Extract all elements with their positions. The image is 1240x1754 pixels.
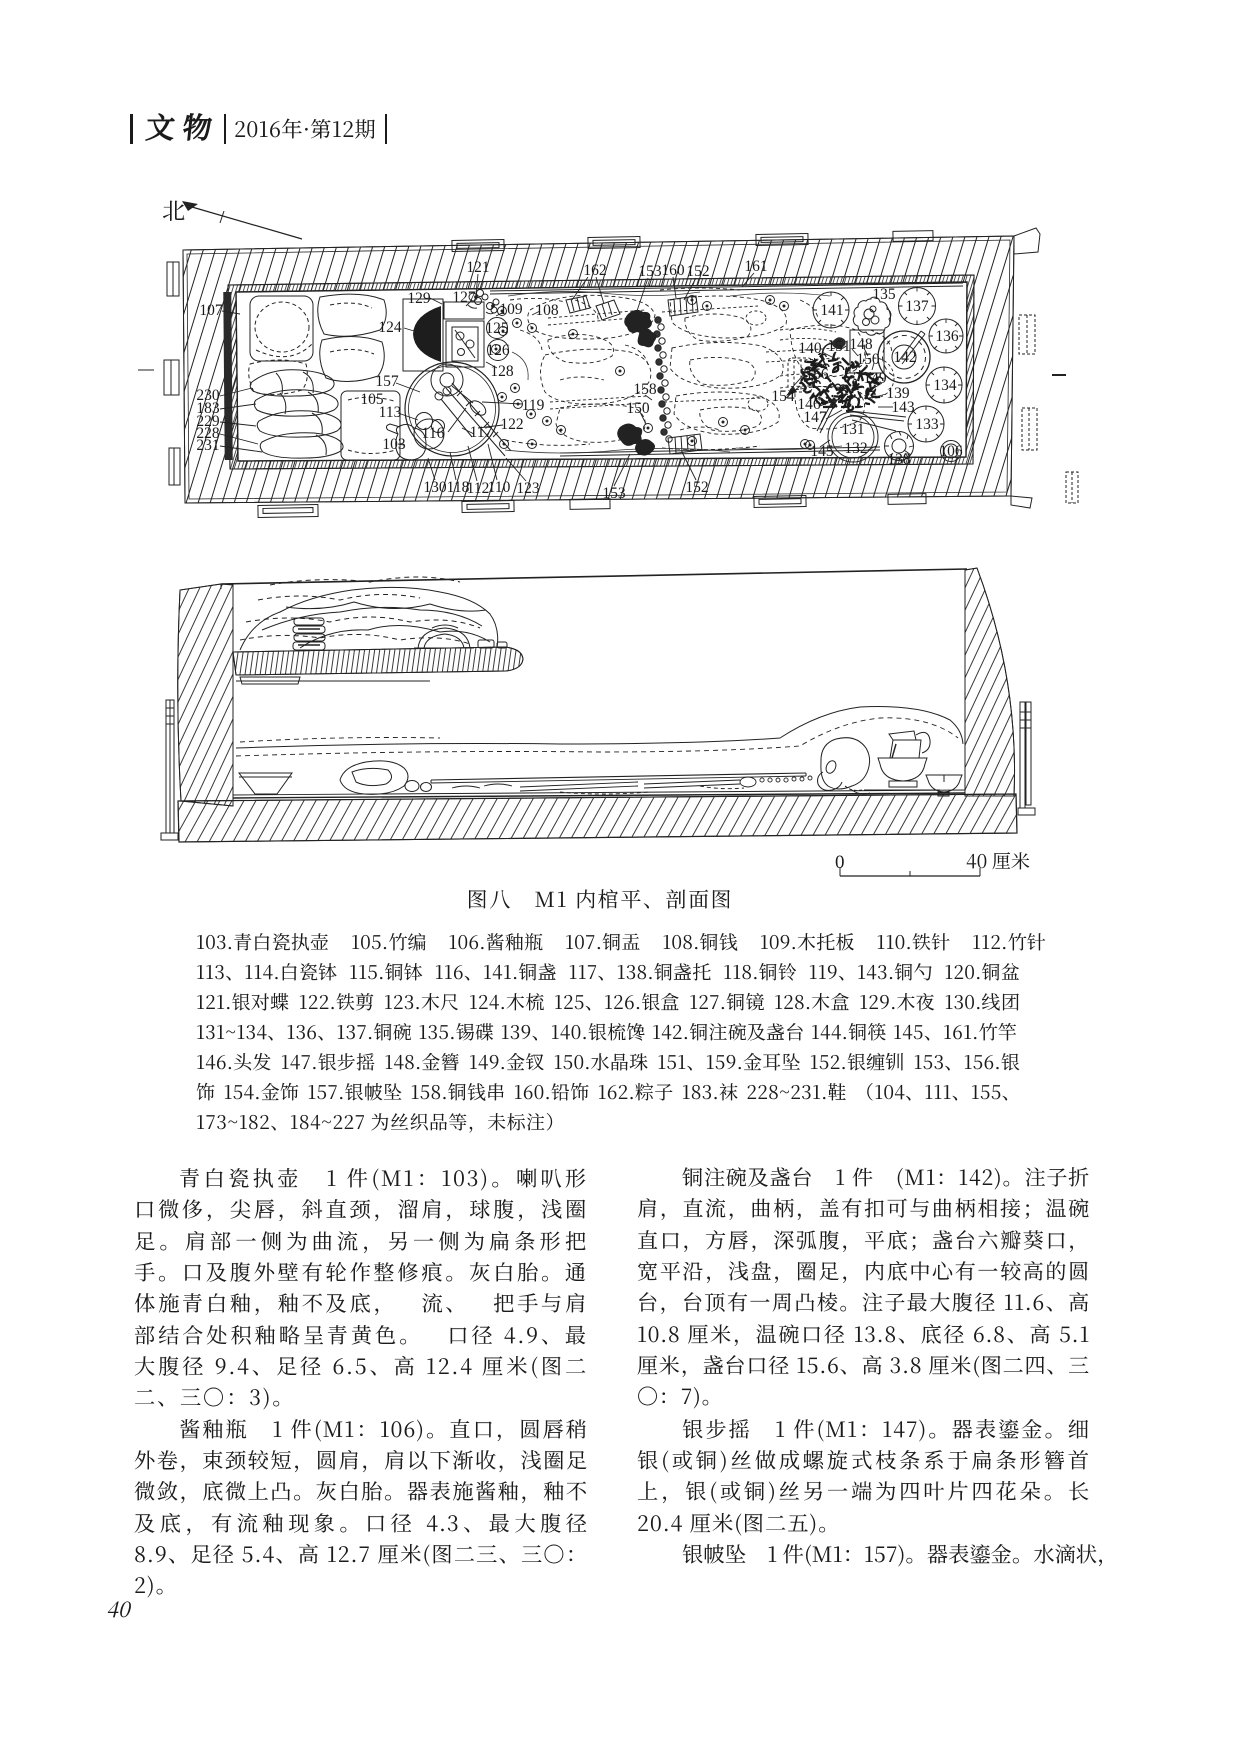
svg-text:137: 137 <box>905 298 929 315</box>
svg-text:132: 132 <box>844 440 867 457</box>
svg-text:125: 125 <box>485 320 509 337</box>
svg-text:112: 112 <box>467 480 490 497</box>
svg-text:143: 143 <box>891 399 915 416</box>
svg-text:107: 107 <box>199 302 223 319</box>
svg-text:162: 162 <box>583 262 606 279</box>
svg-text:113: 113 <box>379 404 402 421</box>
svg-text:153: 153 <box>638 263 662 280</box>
svg-text:231: 231 <box>196 437 219 454</box>
svg-text:133: 133 <box>915 416 939 433</box>
svg-text:158: 158 <box>633 381 657 398</box>
svg-text:150: 150 <box>856 351 880 368</box>
svg-text:154: 154 <box>771 388 795 405</box>
svg-text:0: 0 <box>835 852 845 873</box>
svg-text:126: 126 <box>486 342 510 359</box>
svg-text:151: 151 <box>827 338 850 355</box>
svg-text:110: 110 <box>488 479 511 496</box>
svg-text:109: 109 <box>499 301 523 318</box>
svg-text:157: 157 <box>375 373 399 390</box>
svg-text:152: 152 <box>685 479 708 496</box>
svg-text:106: 106 <box>939 443 963 460</box>
svg-text:122: 122 <box>500 416 523 433</box>
svg-text:127: 127 <box>452 289 476 306</box>
svg-text:161: 161 <box>744 258 767 275</box>
svg-text:138: 138 <box>887 451 911 468</box>
svg-text:117: 117 <box>470 424 493 441</box>
svg-text:150: 150 <box>626 400 650 417</box>
svg-text:160: 160 <box>661 262 685 279</box>
svg-text:153: 153 <box>602 485 626 502</box>
svg-text:134: 134 <box>933 377 957 394</box>
svg-text:149: 149 <box>863 370 887 387</box>
svg-text:119: 119 <box>522 397 545 414</box>
svg-text:152: 152 <box>686 263 709 280</box>
svg-text:156: 156 <box>805 366 829 383</box>
svg-text:131: 131 <box>841 421 864 438</box>
svg-text:123: 123 <box>516 480 540 497</box>
svg-text:142: 142 <box>893 349 916 366</box>
svg-text:128: 128 <box>490 363 514 380</box>
svg-text:130: 130 <box>423 479 447 496</box>
svg-text:40 厘米: 40 厘米 <box>966 847 1030 874</box>
svg-text:116: 116 <box>422 425 445 442</box>
svg-text:141: 141 <box>820 302 843 319</box>
svg-text:136: 136 <box>935 328 959 345</box>
svg-text:121: 121 <box>466 259 489 276</box>
svg-text:103: 103 <box>382 436 406 453</box>
svg-text:145: 145 <box>810 443 834 460</box>
svg-text:129: 129 <box>407 290 431 307</box>
svg-text:147: 147 <box>803 409 827 426</box>
svg-text:108: 108 <box>535 302 559 319</box>
svg-text:140: 140 <box>798 340 822 357</box>
svg-text:135: 135 <box>872 286 896 303</box>
svg-text:124: 124 <box>378 319 402 336</box>
